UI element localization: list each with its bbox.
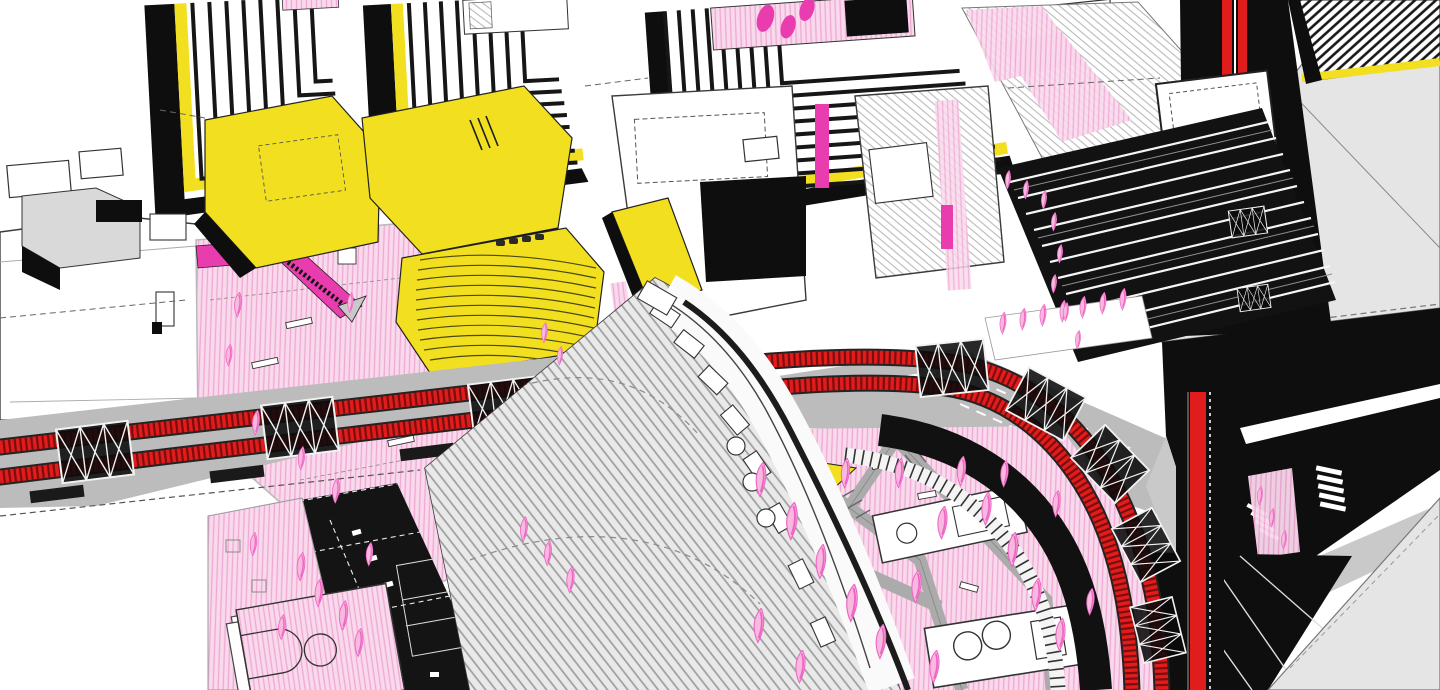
illustration-canvas	[0, 0, 1440, 690]
kiosk-box	[156, 292, 174, 326]
masterplan-drawing	[0, 0, 1440, 690]
